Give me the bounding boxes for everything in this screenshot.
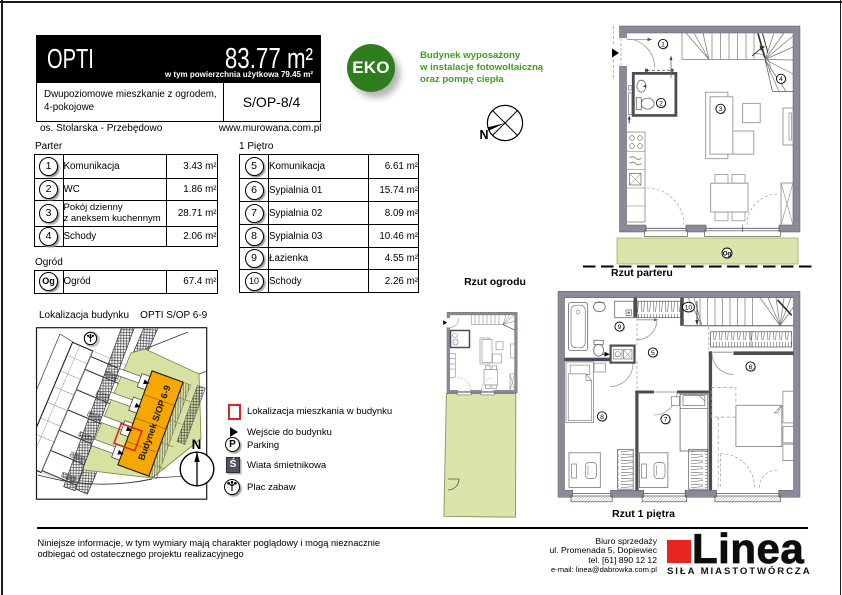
- svg-text:9: 9: [618, 324, 622, 331]
- svg-text:N: N: [192, 437, 202, 452]
- svg-text:6: 6: [749, 364, 753, 371]
- svg-text:8: 8: [600, 414, 604, 421]
- svg-text:2: 2: [659, 100, 663, 107]
- svg-text:1: 1: [661, 41, 665, 48]
- svg-text:3: 3: [719, 106, 723, 113]
- svg-text:5: 5: [651, 350, 655, 357]
- svg-text:4: 4: [779, 76, 783, 83]
- svg-text:10: 10: [685, 305, 693, 312]
- svg-text:7: 7: [664, 417, 668, 424]
- svg-text:Og: Og: [723, 250, 732, 257]
- svg-text:N: N: [479, 128, 488, 142]
